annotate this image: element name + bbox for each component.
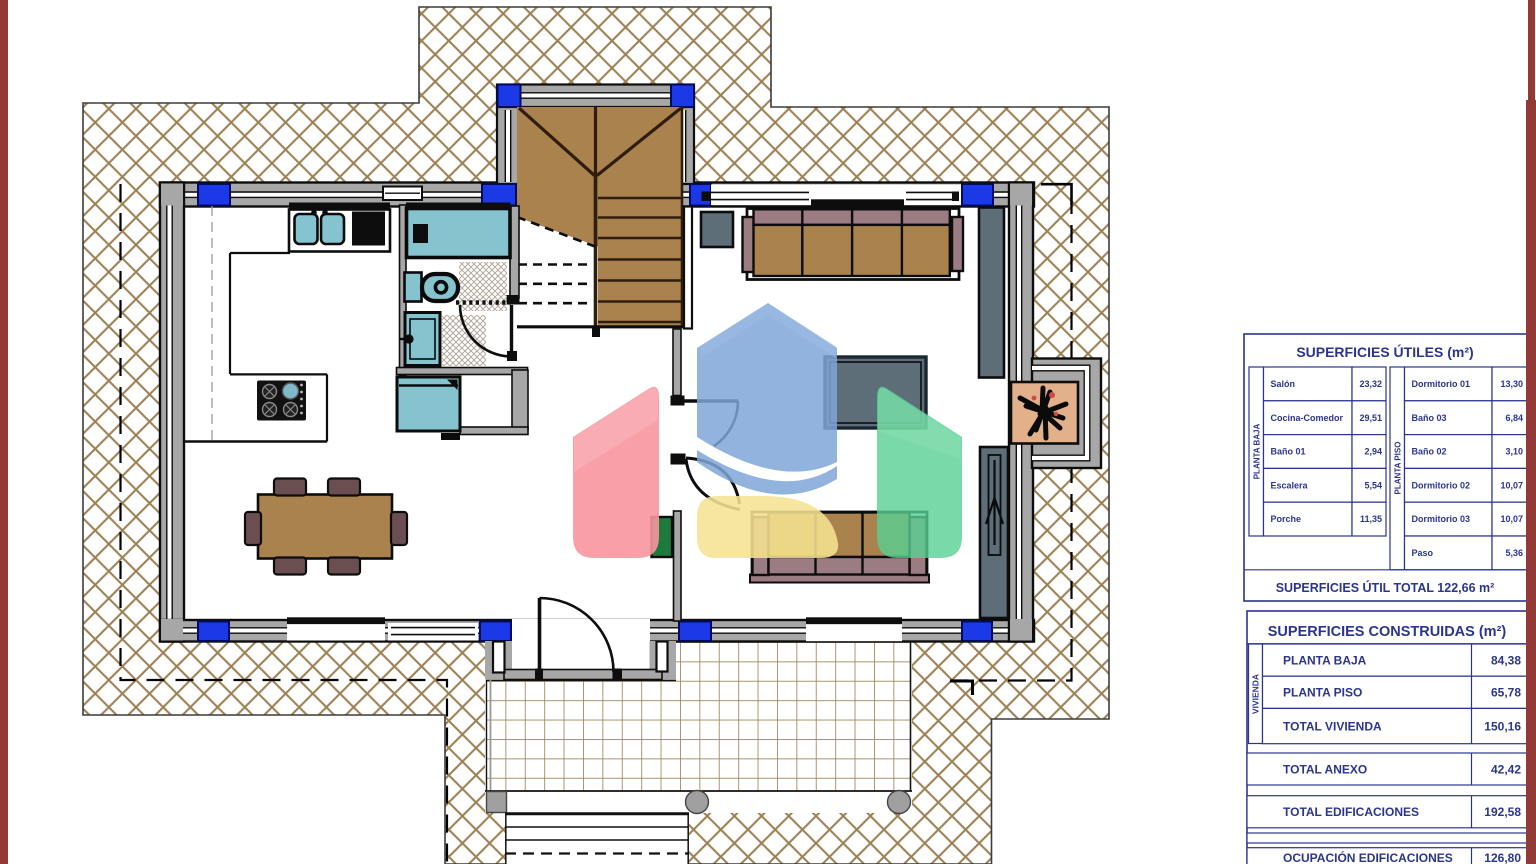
svg-text:Salón: Salón — [1271, 379, 1296, 389]
svg-text:10,07: 10,07 — [1500, 480, 1523, 490]
svg-text:126,80: 126,80 — [1484, 851, 1521, 864]
svg-text:10,07: 10,07 — [1500, 514, 1523, 524]
svg-text:Baño 02: Baño 02 — [1412, 447, 1447, 457]
svg-text:PLANTA BAJA: PLANTA BAJA — [1253, 424, 1262, 480]
svg-text:SUPERFICIES CONSTRUIDAS (m²): SUPERFICIES CONSTRUIDAS (m²) — [1268, 624, 1507, 640]
svg-text:PLANTA PISO: PLANTA PISO — [1394, 442, 1403, 495]
svg-text:29,51: 29,51 — [1359, 413, 1382, 423]
svg-text:65,78: 65,78 — [1491, 686, 1521, 700]
svg-text:5,36: 5,36 — [1505, 548, 1523, 558]
svg-text:Cocina-Comedor: Cocina-Comedor — [1271, 413, 1344, 423]
svg-text:PLANTA BAJA: PLANTA BAJA — [1283, 653, 1367, 667]
svg-text:84,38: 84,38 — [1491, 653, 1521, 667]
svg-text:PLANTA PISO: PLANTA PISO — [1283, 686, 1362, 700]
svg-text:150,16: 150,16 — [1484, 719, 1521, 733]
svg-text:2,94: 2,94 — [1364, 447, 1382, 457]
svg-text:TOTAL ANEXO: TOTAL ANEXO — [1283, 762, 1367, 776]
svg-text:Baño 03: Baño 03 — [1412, 413, 1447, 423]
svg-text:13,30: 13,30 — [1500, 379, 1523, 389]
svg-text:6,84: 6,84 — [1505, 413, 1523, 423]
svg-text:Dormitorio 03: Dormitorio 03 — [1412, 514, 1471, 524]
svg-text:42,42: 42,42 — [1491, 762, 1521, 776]
svg-text:Paso: Paso — [1412, 548, 1434, 558]
svg-text:TOTAL EDIFICACIONES: TOTAL EDIFICACIONES — [1283, 805, 1419, 819]
svg-text:VIVIENDA: VIVIENDA — [1251, 674, 1261, 714]
svg-text:192,58: 192,58 — [1484, 805, 1521, 819]
svg-text:SUPERFICIES ÚTIL TOTAL 122,66: SUPERFICIES ÚTIL TOTAL 122,66 m² — [1276, 580, 1495, 595]
svg-text:11,35: 11,35 — [1360, 514, 1382, 524]
svg-text:23,32: 23,32 — [1359, 379, 1382, 389]
svg-text:SUPERFICIES ÚTILES (m²): SUPERFICIES ÚTILES (m²) — [1296, 343, 1473, 360]
svg-text:5,54: 5,54 — [1364, 480, 1382, 490]
svg-text:Escalera: Escalera — [1271, 480, 1309, 490]
svg-text:3,10: 3,10 — [1505, 447, 1523, 457]
svg-text:Dormitorio 02: Dormitorio 02 — [1412, 480, 1471, 490]
svg-text:OCUPACIÓN EDIFICACIONES: OCUPACIÓN EDIFICACIONES — [1283, 850, 1453, 864]
svg-text:Dormitorio 01: Dormitorio 01 — [1412, 379, 1471, 389]
svg-text:TOTAL VIVIENDA: TOTAL VIVIENDA — [1283, 719, 1382, 733]
svg-text:Baño 01: Baño 01 — [1271, 447, 1306, 457]
svg-text:Porche: Porche — [1271, 514, 1302, 524]
